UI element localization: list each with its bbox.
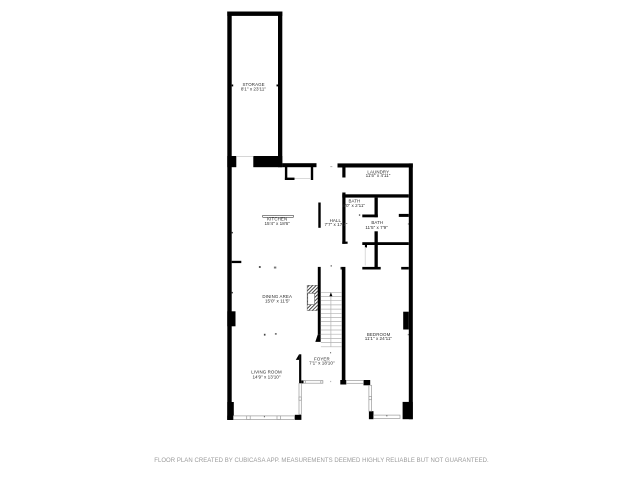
svg-text:11'5" x 7'9": 11'5" x 7'9" bbox=[365, 225, 388, 230]
svg-text:14'9" x 13'10": 14'9" x 13'10" bbox=[252, 374, 280, 379]
svg-text:11'5" x 4'11": 11'5" x 4'11" bbox=[366, 173, 391, 178]
svg-text:11'1" x 24'11": 11'1" x 24'11" bbox=[365, 336, 393, 341]
svg-text:7'1" x 18'10": 7'1" x 18'10" bbox=[309, 361, 335, 366]
svg-text:7'7" x 17'1": 7'7" x 17'1" bbox=[325, 222, 348, 227]
svg-text:15'0" x 11'5": 15'0" x 11'5" bbox=[265, 299, 290, 304]
svg-text:FLOOR PLAN CREATED BY CUBICASA: FLOOR PLAN CREATED BY CUBICASA APP. MEAS… bbox=[154, 458, 489, 464]
svg-text:15'4" x 18'6": 15'4" x 18'6" bbox=[264, 221, 290, 226]
svg-text:4'0" x 2'11": 4'0" x 2'11" bbox=[343, 203, 366, 208]
svg-text:8'1" x 23'11": 8'1" x 23'11" bbox=[241, 87, 266, 92]
